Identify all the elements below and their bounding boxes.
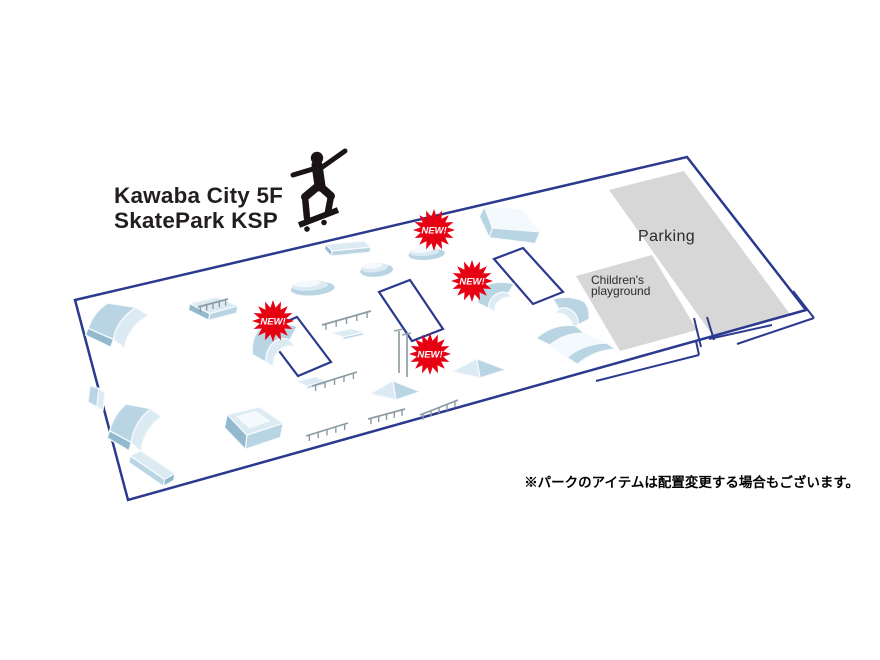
new-badge: NEW! xyxy=(451,260,493,302)
grind-box-obstacle xyxy=(129,451,175,486)
manual-pad-obstacle xyxy=(324,241,370,256)
kicker-obstacle xyxy=(370,381,420,400)
new-badge: NEW! xyxy=(409,333,451,375)
childrens-playground-label: Children's playground xyxy=(591,275,650,297)
grind-rail xyxy=(306,423,348,441)
roller-obstacle xyxy=(358,261,394,279)
ledge-obstacle xyxy=(331,329,364,340)
skater-silhouette-icon xyxy=(293,151,345,232)
skatepark-map-svg: NEW!NEW!NEW!NEW! xyxy=(0,0,880,660)
new-badge: NEW! xyxy=(413,209,455,251)
flat-area-outline xyxy=(379,280,443,341)
park-title: Kawaba City 5F SkatePark KSP xyxy=(114,183,283,233)
grind-rail xyxy=(368,409,405,424)
new-badge-label: NEW! xyxy=(417,350,442,361)
high-rail-pole xyxy=(394,329,403,373)
pyramid-obstacle xyxy=(452,359,505,378)
entrance-line xyxy=(696,341,699,355)
layout-change-note: ※パークのアイテムは配置変更する場合もございます。 xyxy=(524,471,859,491)
quarter-ramp-obstacle xyxy=(553,297,589,328)
quarter-pipe-obstacle xyxy=(107,404,161,452)
park-title-line1: Kawaba City 5F xyxy=(114,183,283,208)
small-ramp-obstacle xyxy=(88,386,105,410)
funbox-obstacle xyxy=(224,407,283,449)
quarter-pipe-obstacle xyxy=(85,303,148,348)
new-badge: NEW! xyxy=(252,300,294,342)
bank-ramp-obstacle xyxy=(479,207,540,243)
mini-ramp-obstacle xyxy=(536,325,615,364)
entrance-line xyxy=(596,355,699,381)
new-badge-label: NEW! xyxy=(421,226,446,237)
park-title-line2: SkatePark KSP xyxy=(114,208,283,233)
roller-obstacle xyxy=(288,278,336,297)
high-rail-pole xyxy=(402,333,411,377)
parking-label: Parking xyxy=(638,228,695,246)
grind-rail xyxy=(322,311,371,330)
entrance-line xyxy=(694,318,701,347)
skatepark-map-page: NEW!NEW!NEW!NEW! Kawaba City 5F SkatePar… xyxy=(0,0,880,660)
new-badge-label: NEW! xyxy=(459,277,484,288)
playground-label-line2: playground xyxy=(591,286,650,297)
new-badge-label: NEW! xyxy=(260,317,285,328)
